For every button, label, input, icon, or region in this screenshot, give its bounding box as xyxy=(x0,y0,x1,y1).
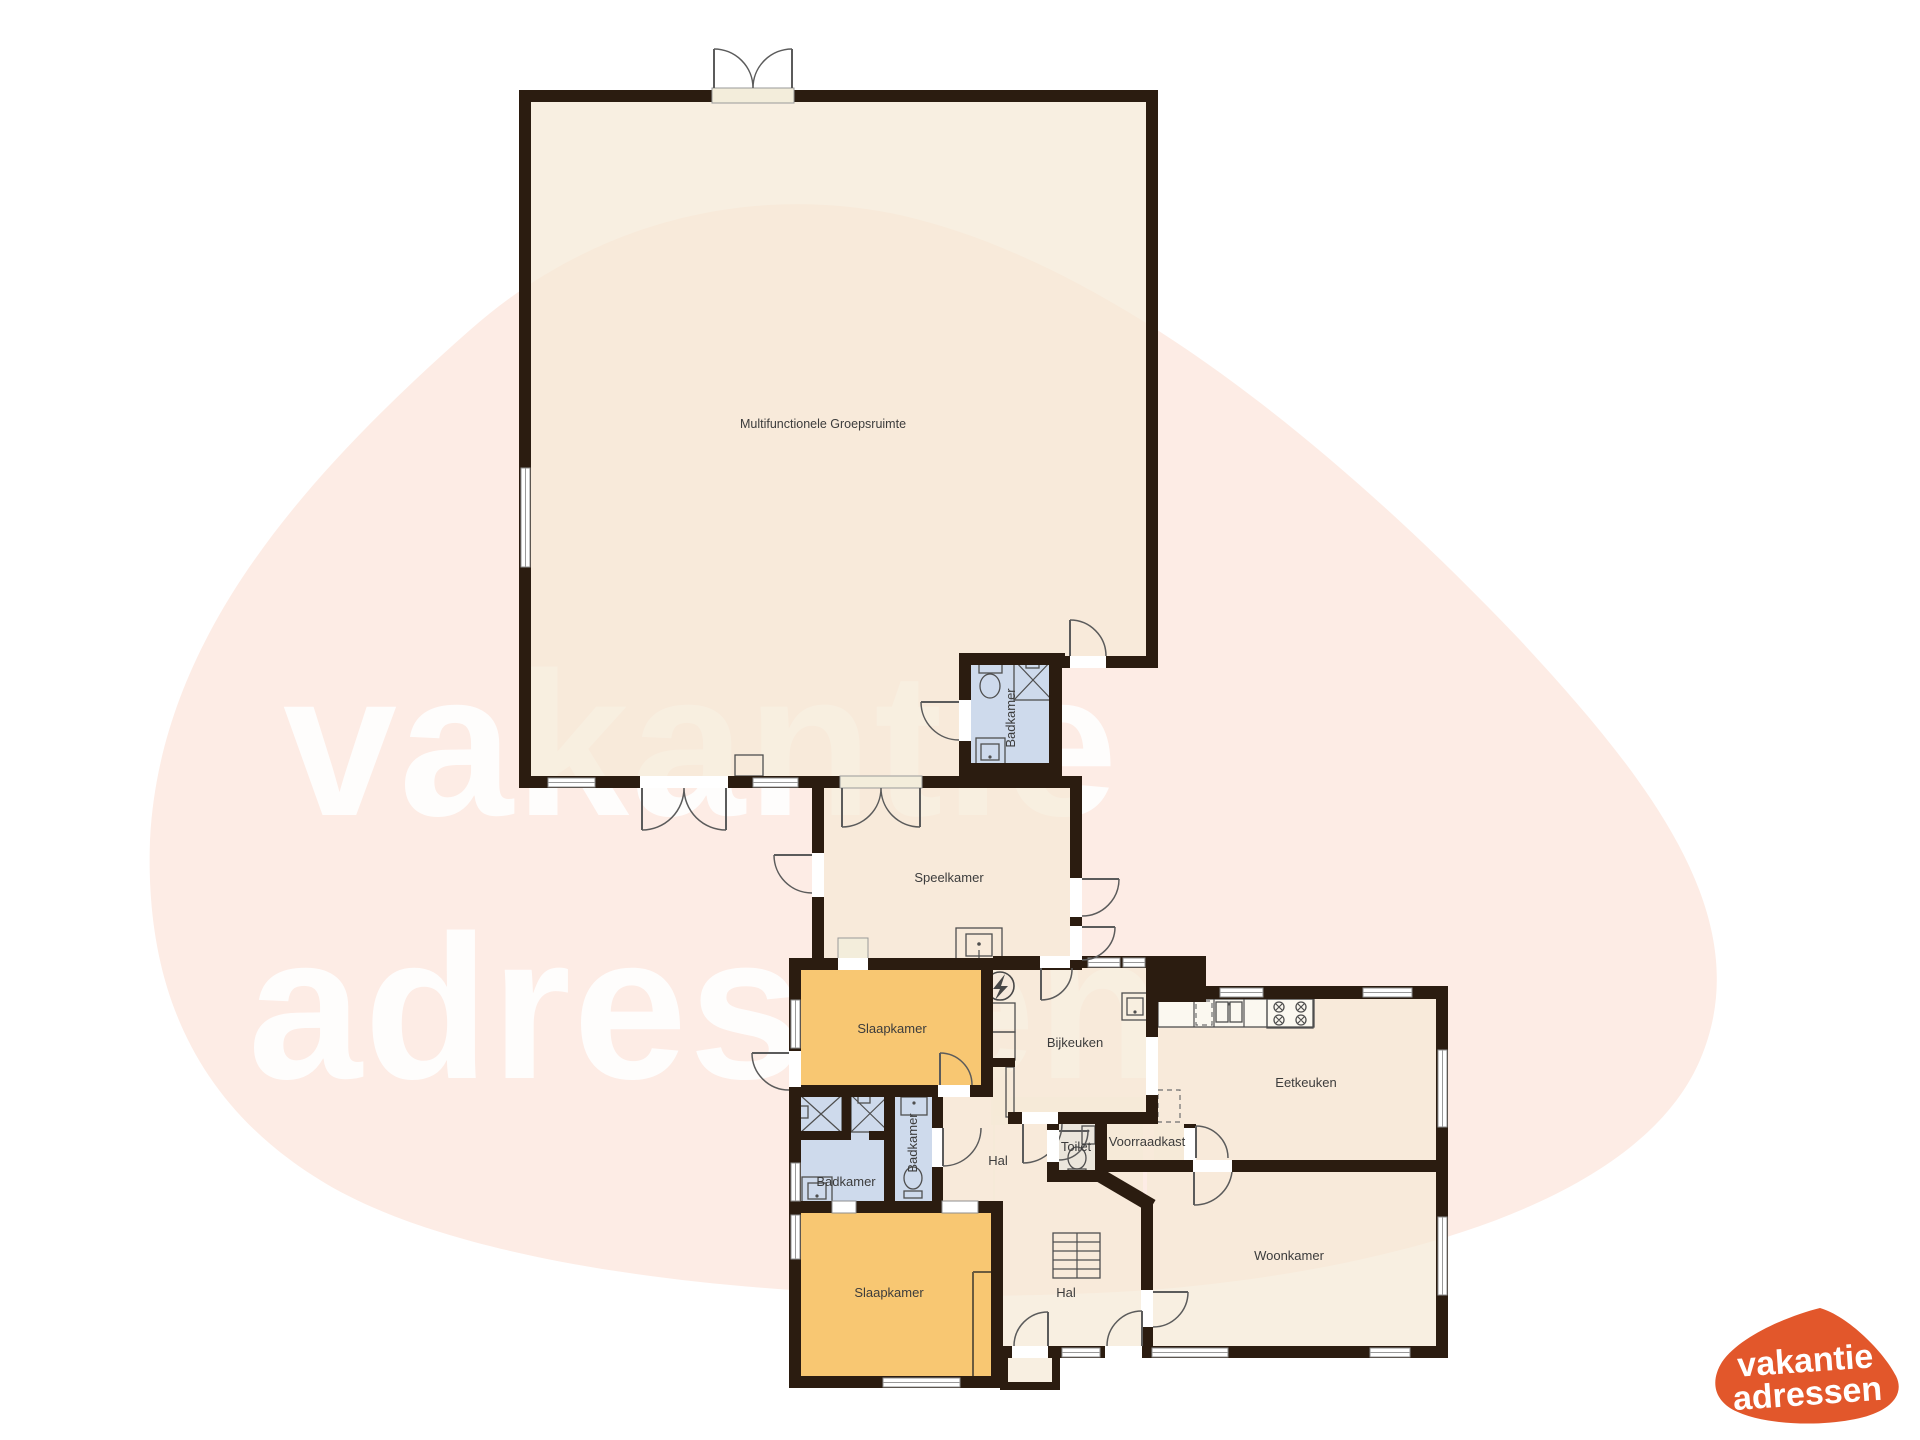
room-label-groepsruimte: Multifunctionele Groepsruimte xyxy=(740,417,906,431)
window xyxy=(548,778,595,787)
room-porch xyxy=(1004,1356,1054,1384)
room-label-badkamer-mid: Badkamer xyxy=(905,1113,920,1173)
floorplan-page: vakantie adressen xyxy=(0,0,1920,1440)
room-label-hal-onder: Hal xyxy=(1056,1285,1076,1300)
room-hal-boven xyxy=(941,1095,995,1207)
room-label-speelkamer: Speelkamer xyxy=(914,870,984,885)
doorway xyxy=(942,1201,978,1213)
room-label-hal-boven: Hal xyxy=(988,1153,1008,1168)
room-label-slaapkamer-2: Slaapkamer xyxy=(854,1285,924,1300)
window xyxy=(1220,988,1263,997)
window xyxy=(1438,1050,1447,1127)
room-label-voorraadkast: Voorraadkast xyxy=(1109,1134,1186,1149)
window xyxy=(1062,1348,1100,1357)
kitchen-counter-icon xyxy=(1158,999,1314,1028)
doorway xyxy=(838,958,868,970)
room-label-woonkamer: Woonkamer xyxy=(1254,1248,1325,1263)
window xyxy=(1438,1217,1447,1295)
room-label-slaapkamer-1: Slaapkamer xyxy=(857,1021,927,1036)
window xyxy=(883,1378,960,1387)
floorplan-svg: vakantie adressen xyxy=(0,0,1920,1440)
room-label-badkamer-top: Badkamer xyxy=(1003,688,1018,748)
room-label-eetkeuken: Eetkeuken xyxy=(1275,1075,1336,1090)
sliding-door-icon xyxy=(838,938,868,960)
room-label-bijkeuken: Bijkeuken xyxy=(1047,1035,1103,1050)
window xyxy=(753,778,798,787)
doorway xyxy=(1146,1037,1158,1095)
room-label-badkamer-left: Badkamer xyxy=(816,1174,876,1189)
window xyxy=(1088,958,1120,967)
window xyxy=(791,1215,800,1259)
window xyxy=(791,1000,800,1048)
window xyxy=(1363,988,1412,997)
logo: vakantie adressen xyxy=(1715,1308,1898,1424)
window xyxy=(521,468,530,567)
window xyxy=(1123,958,1145,967)
double-door xyxy=(712,49,794,103)
window xyxy=(1152,1348,1228,1357)
window xyxy=(791,1163,800,1201)
doorway xyxy=(832,1201,856,1213)
window xyxy=(1370,1348,1410,1357)
room-label-toilet: Toilet xyxy=(1061,1139,1092,1154)
